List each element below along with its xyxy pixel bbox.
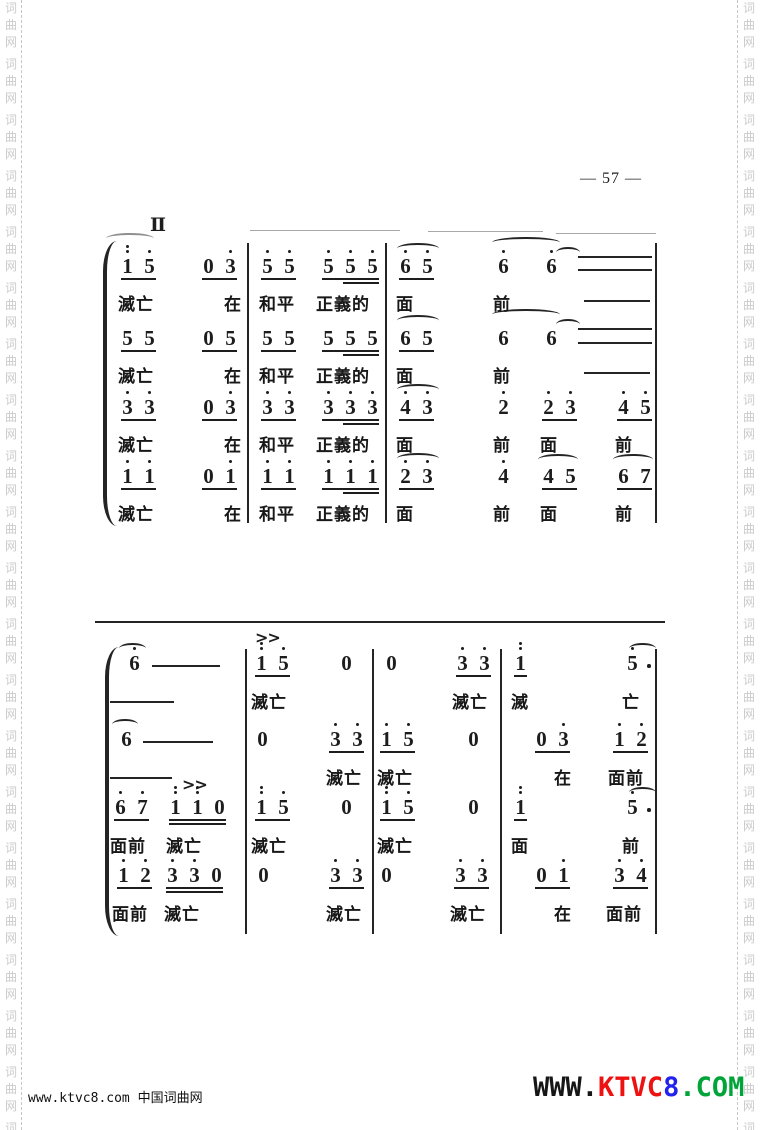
note-digit: 1 bbox=[255, 651, 268, 675]
octave-dot bbox=[174, 786, 177, 789]
beam-underline bbox=[617, 488, 652, 490]
note-cell: 03 bbox=[202, 395, 237, 419]
octave-dot bbox=[459, 859, 462, 862]
octave-dot bbox=[126, 250, 129, 253]
note-digit: 6 bbox=[545, 326, 558, 350]
note-cell: 6 bbox=[497, 254, 510, 278]
note-digit: 5 bbox=[626, 795, 639, 819]
note-digit: 6 bbox=[497, 326, 510, 350]
octave-dot bbox=[260, 786, 263, 789]
note-digit: 2 bbox=[139, 863, 152, 887]
note-digit: 1 bbox=[380, 795, 393, 819]
octave-dot bbox=[461, 647, 464, 650]
note-cell: 01 bbox=[202, 464, 237, 488]
note-digit: 3 bbox=[456, 651, 469, 675]
lyric-text: 滅亡 bbox=[118, 431, 154, 456]
beam-underline bbox=[121, 488, 156, 490]
lyric-text: 滅亡 bbox=[251, 832, 287, 857]
beam-underline bbox=[542, 488, 577, 490]
beam-underline-2 bbox=[343, 282, 379, 284]
beam-underline bbox=[399, 419, 434, 421]
lyric-text: 滅亡 bbox=[377, 764, 413, 789]
site-logo-segment: KTVC bbox=[598, 1072, 663, 1103]
lyric-text: 面前 bbox=[112, 900, 148, 925]
note-cell: 03 bbox=[535, 727, 570, 751]
octave-dot bbox=[618, 723, 621, 726]
site-logo[interactable]: WWW.KTVC8.COM bbox=[533, 1072, 744, 1103]
note-digit: 6 bbox=[617, 464, 630, 488]
note-digit: 3 bbox=[344, 395, 357, 419]
beam-underline bbox=[514, 675, 527, 677]
note-cell: 15 bbox=[255, 651, 290, 675]
note-digit: 0 bbox=[385, 651, 398, 675]
note-cell: 0 bbox=[256, 727, 269, 751]
lyric-text: 面 bbox=[511, 832, 529, 857]
barline bbox=[655, 243, 657, 523]
note-cell: 33 bbox=[454, 863, 489, 887]
octave-dot bbox=[385, 791, 388, 794]
note-cell: 67 bbox=[617, 464, 652, 488]
beam-underline bbox=[166, 887, 223, 889]
held-note-dash bbox=[578, 269, 652, 271]
beam-underline bbox=[117, 887, 152, 889]
held-note-dash bbox=[143, 741, 213, 743]
note-digit: 0 bbox=[202, 464, 215, 488]
note-cell: 5 bbox=[626, 795, 639, 819]
note-digit: 5 bbox=[564, 464, 577, 488]
note-digit: 5 bbox=[261, 254, 274, 278]
lyric-text: 面 bbox=[540, 431, 558, 456]
note-digit: 0 bbox=[467, 795, 480, 819]
lyric-text: 前 bbox=[493, 290, 511, 315]
lyric-text: 亡 bbox=[622, 688, 640, 713]
note-cell: 1 bbox=[514, 651, 527, 675]
octave-dot bbox=[282, 647, 285, 650]
held-note-dash bbox=[110, 777, 172, 779]
lyric-text: 滅亡 bbox=[377, 832, 413, 857]
lyric-text: 面 bbox=[540, 500, 558, 525]
lyric-text: 面前 bbox=[606, 900, 642, 925]
note-cell: 2 bbox=[497, 395, 510, 419]
note-digit: 7 bbox=[136, 795, 149, 819]
note-cell: 03 bbox=[202, 254, 237, 278]
held-note-dash bbox=[578, 256, 652, 258]
note-cell: 15 bbox=[255, 795, 290, 819]
lyric-text: 在 bbox=[224, 362, 242, 387]
octave-dot bbox=[119, 791, 122, 794]
note-digit: 3 bbox=[564, 395, 577, 419]
octave-dot bbox=[288, 460, 291, 463]
note-digit: 3 bbox=[224, 395, 237, 419]
octave-dot bbox=[547, 391, 550, 394]
slur-tie bbox=[492, 237, 560, 248]
note-cell: 5 bbox=[626, 651, 639, 675]
note-digit: 1 bbox=[117, 863, 130, 887]
octave-dot bbox=[356, 859, 359, 862]
octave-dot bbox=[562, 723, 565, 726]
octave-dot bbox=[502, 460, 505, 463]
lyric-text: 面 bbox=[396, 500, 414, 525]
beam-underline bbox=[399, 488, 434, 490]
accent-marks: >> bbox=[255, 628, 280, 647]
octave-dot bbox=[502, 391, 505, 394]
note-cell: 05 bbox=[202, 326, 237, 350]
note-cell: 67 bbox=[114, 795, 149, 819]
note-cell: 0 bbox=[340, 651, 353, 675]
octave-dot bbox=[519, 786, 522, 789]
beam-underline bbox=[114, 819, 149, 821]
lyric-text: 滅亡 bbox=[118, 362, 154, 387]
held-note-dash bbox=[584, 372, 650, 374]
octave-dot bbox=[144, 859, 147, 862]
augmentation-dot bbox=[647, 808, 651, 812]
note-digit: 3 bbox=[557, 727, 570, 751]
lyric-text: 和平 bbox=[259, 290, 295, 315]
note-digit: 1 bbox=[121, 254, 134, 278]
music-sheet: 1503555556566滅亡在和平正義的面前5505555556566滅亡在和… bbox=[0, 0, 760, 1130]
beam-underline bbox=[121, 350, 156, 352]
note-digit: 1 bbox=[224, 464, 237, 488]
octave-dot bbox=[141, 791, 144, 794]
note-digit: 0 bbox=[213, 795, 226, 819]
beam-underline bbox=[202, 488, 237, 490]
lyric-text: 正義的 bbox=[316, 500, 370, 525]
octave-dot bbox=[148, 391, 151, 394]
beam-underline bbox=[255, 819, 290, 821]
lyric-text: 滅亡 bbox=[326, 900, 362, 925]
note-cell: 23 bbox=[399, 464, 434, 488]
note-digit: 3 bbox=[329, 727, 342, 751]
beam-underline bbox=[261, 350, 296, 352]
octave-dot bbox=[550, 250, 553, 253]
note-cell: 0 bbox=[340, 795, 353, 819]
note-digit: 5 bbox=[402, 727, 415, 751]
note-digit: 4 bbox=[617, 395, 630, 419]
beam-underline-2 bbox=[343, 354, 379, 356]
lyric-text: 面 bbox=[396, 290, 414, 315]
note-digit: 6 bbox=[545, 254, 558, 278]
note-digit: 5 bbox=[344, 254, 357, 278]
lyric-text: 滅亡 bbox=[450, 900, 486, 925]
beam-underline bbox=[121, 419, 156, 421]
note-cell: 555 bbox=[322, 326, 379, 350]
octave-dot bbox=[174, 791, 177, 794]
octave-dot bbox=[349, 391, 352, 394]
octave-dot bbox=[193, 859, 196, 862]
lyric-text: 正義的 bbox=[316, 362, 370, 387]
footer-site-text[interactable]: www.ktvc8.com 中国词曲网 bbox=[28, 1087, 203, 1106]
lyric-text: 前 bbox=[493, 362, 511, 387]
octave-dot bbox=[349, 460, 352, 463]
octave-dot bbox=[288, 250, 291, 253]
note-digit: 3 bbox=[166, 863, 179, 887]
slur-tie bbox=[556, 247, 580, 258]
octave-dot bbox=[519, 642, 522, 645]
note-digit: 3 bbox=[351, 727, 364, 751]
beam-underline bbox=[261, 419, 296, 421]
octave-dot bbox=[481, 859, 484, 862]
note-cell: 11 bbox=[261, 464, 296, 488]
beam-underline bbox=[456, 675, 491, 677]
sheet-page: 词曲网词曲网词曲网词曲网词曲网词曲网词曲网词曲网词曲网词曲网词曲网词曲网词曲网词… bbox=[0, 0, 760, 1130]
beam-underline bbox=[202, 350, 237, 352]
beam-underline-2 bbox=[169, 823, 226, 825]
beam-underline bbox=[542, 419, 577, 421]
beam-underline bbox=[202, 419, 237, 421]
note-digit: 6 bbox=[399, 326, 412, 350]
beam-underline-2 bbox=[343, 492, 379, 494]
note-cell: 15 bbox=[380, 795, 415, 819]
note-digit: 1 bbox=[261, 464, 274, 488]
octave-dot bbox=[356, 723, 359, 726]
accent-marks: >> bbox=[182, 775, 207, 794]
note-digit: 0 bbox=[202, 326, 215, 350]
beam-underline bbox=[261, 488, 296, 490]
site-logo-segment: 8 bbox=[663, 1072, 679, 1103]
note-digit: 5 bbox=[121, 326, 134, 350]
note-digit: 4 bbox=[399, 395, 412, 419]
note-digit: 3 bbox=[283, 395, 296, 419]
beam-underline bbox=[322, 488, 379, 490]
augmentation-dot bbox=[647, 664, 651, 668]
note-digit: 2 bbox=[542, 395, 555, 419]
note-digit: 6 bbox=[114, 795, 127, 819]
barline bbox=[500, 649, 502, 934]
held-note-dash bbox=[556, 233, 656, 234]
note-cell: 6 bbox=[545, 326, 558, 350]
note-cell: 33 bbox=[121, 395, 156, 419]
note-cell: 33 bbox=[329, 863, 364, 887]
note-cell: 43 bbox=[399, 395, 434, 419]
octave-dot bbox=[229, 460, 232, 463]
octave-dot bbox=[148, 460, 151, 463]
note-cell: 555 bbox=[322, 254, 379, 278]
note-cell: 110 bbox=[169, 795, 226, 819]
octave-dot bbox=[126, 391, 129, 394]
octave-dot bbox=[385, 723, 388, 726]
note-digit: 0 bbox=[202, 395, 215, 419]
note-cell: 01 bbox=[535, 863, 570, 887]
octave-dot bbox=[334, 723, 337, 726]
note-cell: 55 bbox=[261, 326, 296, 350]
lyric-text: 面 bbox=[396, 431, 414, 456]
site-logo-segment: .COM bbox=[679, 1072, 744, 1103]
lyric-text: 滅亡 bbox=[118, 500, 154, 525]
beam-underline bbox=[617, 419, 652, 421]
octave-dot bbox=[349, 250, 352, 253]
note-digit: 0 bbox=[340, 651, 353, 675]
note-cell: 6 bbox=[497, 326, 510, 350]
note-cell: 1 bbox=[514, 795, 527, 819]
beam-underline bbox=[329, 751, 364, 753]
lyric-text: 前 bbox=[493, 431, 511, 456]
beam-underline bbox=[322, 419, 379, 421]
note-cell: 330 bbox=[166, 863, 223, 887]
octave-dot bbox=[519, 647, 522, 650]
note-digit: 1 bbox=[143, 464, 156, 488]
note-digit: 5 bbox=[322, 254, 335, 278]
barline bbox=[247, 243, 249, 523]
held-note-dash bbox=[584, 300, 650, 302]
octave-dot bbox=[126, 460, 129, 463]
note-digit: 3 bbox=[121, 395, 134, 419]
octave-dot bbox=[371, 391, 374, 394]
slur-tie bbox=[556, 319, 580, 330]
note-cell: 12 bbox=[117, 863, 152, 887]
note-digit: 5 bbox=[143, 254, 156, 278]
lyric-text: 和平 bbox=[259, 500, 295, 525]
note-digit: 3 bbox=[143, 395, 156, 419]
beam-underline bbox=[399, 350, 434, 352]
octave-dot bbox=[483, 647, 486, 650]
barline bbox=[245, 649, 247, 934]
note-digit: 0 bbox=[210, 863, 223, 887]
note-digit: 5 bbox=[402, 795, 415, 819]
lyric-text: 滅 bbox=[511, 688, 529, 713]
lyric-text: 在 bbox=[224, 431, 242, 456]
note-cell: 111 bbox=[322, 464, 379, 488]
lyric-text: 前 bbox=[622, 832, 640, 857]
held-note-dash bbox=[110, 701, 174, 703]
lyric-text: 滅亡 bbox=[166, 832, 202, 857]
lyric-text: 滅亡 bbox=[326, 764, 362, 789]
octave-dot bbox=[327, 460, 330, 463]
note-digit: 5 bbox=[261, 326, 274, 350]
note-digit: 0 bbox=[256, 727, 269, 751]
note-digit: 0 bbox=[257, 863, 270, 887]
note-cell: 0 bbox=[380, 863, 393, 887]
beam-underline bbox=[613, 751, 648, 753]
note-digit: 3 bbox=[322, 395, 335, 419]
lyric-text: 和平 bbox=[259, 431, 295, 456]
note-cell: 33 bbox=[261, 395, 296, 419]
note-digit: 0 bbox=[467, 727, 480, 751]
octave-dot bbox=[334, 859, 337, 862]
beam-underline bbox=[121, 278, 156, 280]
octave-dot bbox=[640, 859, 643, 862]
system-brace bbox=[103, 241, 117, 526]
note-digit: 1 bbox=[283, 464, 296, 488]
note-digit: 3 bbox=[366, 395, 379, 419]
beam-underline bbox=[202, 278, 237, 280]
octave-dot bbox=[519, 791, 522, 794]
note-digit: 6 bbox=[497, 254, 510, 278]
note-digit: 5 bbox=[366, 254, 379, 278]
octave-dot bbox=[148, 250, 151, 253]
note-digit: 3 bbox=[613, 863, 626, 887]
octave-dot bbox=[327, 250, 330, 253]
octave-dot bbox=[266, 460, 269, 463]
note-digit: 7 bbox=[639, 464, 652, 488]
note-digit: 3 bbox=[421, 464, 434, 488]
octave-dot bbox=[282, 791, 285, 794]
note-digit: 1 bbox=[514, 795, 527, 819]
note-digit: 2 bbox=[497, 395, 510, 419]
note-digit: 6 bbox=[128, 651, 141, 675]
octave-dot bbox=[644, 391, 647, 394]
note-digit: 3 bbox=[261, 395, 274, 419]
note-digit: 3 bbox=[454, 863, 467, 887]
beam-underline bbox=[535, 751, 570, 753]
note-cell: 15 bbox=[380, 727, 415, 751]
note-digit: 1 bbox=[169, 795, 182, 819]
note-digit: 1 bbox=[557, 863, 570, 887]
octave-dot bbox=[288, 391, 291, 394]
lyric-text: 前 bbox=[615, 431, 633, 456]
lyric-text: 在 bbox=[224, 290, 242, 315]
system-brace bbox=[105, 647, 119, 936]
beam-underline bbox=[454, 887, 489, 889]
note-cell: 45 bbox=[617, 395, 652, 419]
octave-dot bbox=[371, 460, 374, 463]
note-digit: 4 bbox=[497, 464, 510, 488]
note-digit: 3 bbox=[188, 863, 201, 887]
octave-dot bbox=[640, 723, 643, 726]
octave-dot bbox=[562, 859, 565, 862]
octave-dot bbox=[266, 250, 269, 253]
note-digit: 3 bbox=[224, 254, 237, 278]
note-digit: 5 bbox=[626, 651, 639, 675]
lyric-text: 面前 bbox=[110, 832, 146, 857]
note-digit: 5 bbox=[283, 326, 296, 350]
octave-dot bbox=[327, 391, 330, 394]
octave-dot bbox=[229, 250, 232, 253]
note-digit: 5 bbox=[143, 326, 156, 350]
site-logo-segment: WWW. bbox=[533, 1072, 598, 1103]
note-digit: 0 bbox=[380, 863, 393, 887]
note-digit: 5 bbox=[421, 254, 434, 278]
slur-tie bbox=[106, 233, 154, 244]
note-digit: 0 bbox=[535, 727, 548, 751]
note-digit: 5 bbox=[344, 326, 357, 350]
beam-underline bbox=[322, 278, 379, 280]
held-note-dash bbox=[428, 231, 543, 232]
lyric-text: 面前 bbox=[608, 764, 644, 789]
held-note-dash bbox=[578, 342, 652, 344]
note-digit: 5 bbox=[277, 651, 290, 675]
note-digit: 6 bbox=[120, 727, 133, 751]
note-digit: 3 bbox=[478, 651, 491, 675]
note-cell: 6 bbox=[128, 651, 141, 675]
beam-underline bbox=[380, 751, 415, 753]
note-digit: 5 bbox=[283, 254, 296, 278]
note-digit: 4 bbox=[635, 863, 648, 887]
octave-dot bbox=[266, 391, 269, 394]
octave-dot bbox=[171, 859, 174, 862]
octave-dot bbox=[371, 250, 374, 253]
octave-dot bbox=[407, 791, 410, 794]
note-cell: 333 bbox=[322, 395, 379, 419]
note-cell: 65 bbox=[399, 254, 434, 278]
note-cell: 4 bbox=[497, 464, 510, 488]
note-cell: 0 bbox=[467, 727, 480, 751]
note-digit: 0 bbox=[535, 863, 548, 887]
note-digit: 1 bbox=[344, 464, 357, 488]
note-digit: 2 bbox=[399, 464, 412, 488]
held-note-dash bbox=[152, 665, 220, 667]
note-cell: 34 bbox=[613, 863, 648, 887]
lyric-text: 滅亡 bbox=[164, 900, 200, 925]
note-digit: 5 bbox=[639, 395, 652, 419]
lyric-text: 正義的 bbox=[316, 431, 370, 456]
note-cell: 11 bbox=[121, 464, 156, 488]
lyric-text: 在 bbox=[554, 900, 572, 925]
note-cell: 6 bbox=[545, 254, 558, 278]
beam-underline bbox=[329, 887, 364, 889]
beam-underline bbox=[169, 819, 226, 821]
octave-dot bbox=[502, 250, 505, 253]
note-digit: 3 bbox=[476, 863, 489, 887]
